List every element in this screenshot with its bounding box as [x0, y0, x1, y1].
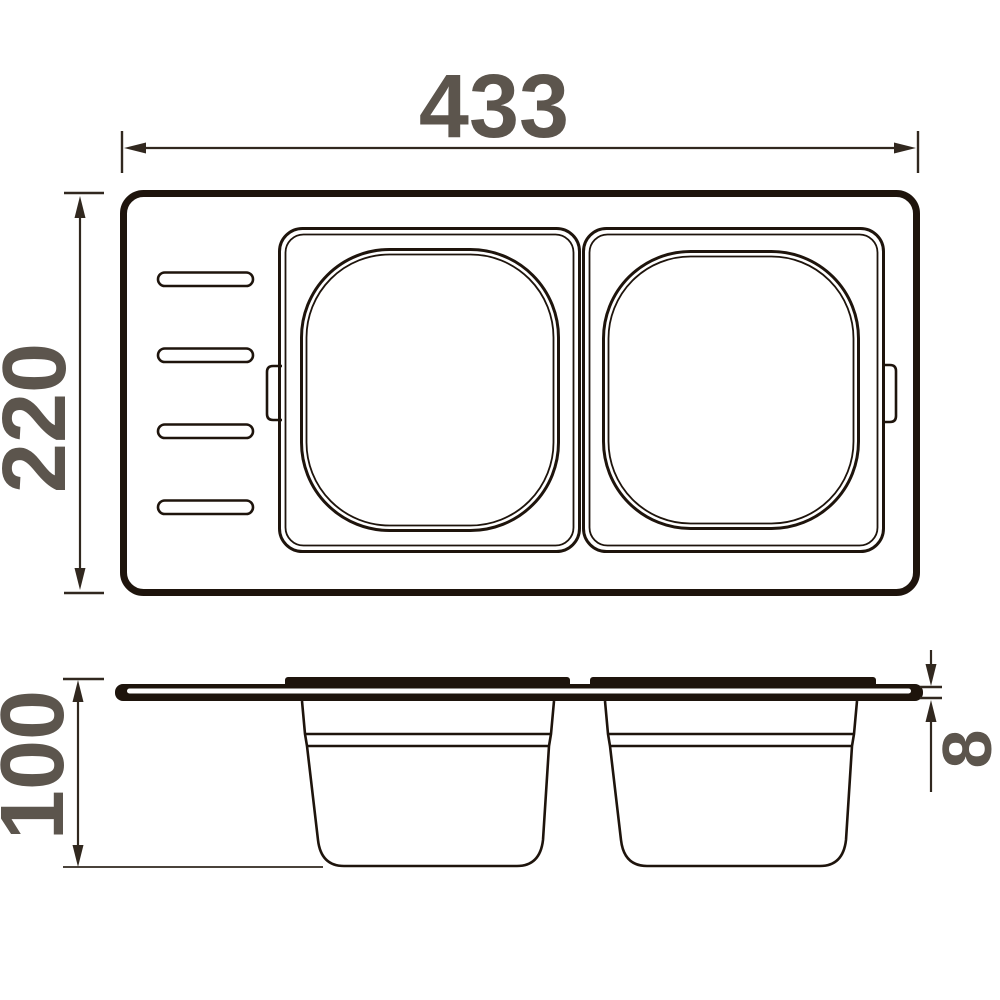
left-pan-body	[302, 701, 554, 866]
right-pan-opening-outer	[604, 252, 859, 529]
dim-rim-label: 8	[928, 730, 1000, 769]
dim-depth-label: 100	[0, 690, 83, 840]
dim-height-label: 220	[0, 343, 85, 493]
right-pan-body	[605, 701, 857, 866]
dim-width-arrow-left	[124, 143, 146, 154]
drain-slots	[158, 273, 253, 515]
dimension-drawing-page: 433 220 100	[0, 0, 1000, 1000]
drain-slot	[158, 425, 253, 439]
dim-depth: 100	[0, 679, 323, 867]
dim-width: 433	[122, 57, 918, 173]
top-view	[124, 194, 917, 593]
left-pan-top	[280, 229, 580, 552]
side-view	[115, 677, 923, 866]
dim-width-arrow-right	[894, 143, 916, 154]
tray-outline	[124, 194, 917, 593]
dim-height-arrow-bottom	[75, 568, 86, 590]
right-pan-profile	[605, 701, 857, 866]
right-pan-top	[584, 229, 884, 552]
dim-rim-arrow-up	[926, 700, 937, 722]
left-pan-opening-inner	[307, 255, 554, 526]
dim-depth-arrow-bottom	[73, 845, 84, 867]
drain-slot	[158, 501, 253, 515]
dim-rim-arrow-down	[926, 664, 937, 686]
dim-height-arrow-top	[75, 196, 86, 218]
dim-width-label: 433	[419, 57, 569, 157]
dim-height: 220	[0, 193, 104, 593]
drain-slot	[158, 349, 253, 363]
drain-slot	[158, 273, 253, 287]
left-pan-profile	[302, 701, 554, 866]
technical-drawing: 433 220 100	[0, 0, 1000, 1000]
rim-highlight	[127, 689, 911, 694]
left-pan-opening-outer	[302, 250, 559, 531]
dim-rim: 8	[920, 650, 1000, 792]
right-pan-opening-inner	[609, 257, 854, 524]
